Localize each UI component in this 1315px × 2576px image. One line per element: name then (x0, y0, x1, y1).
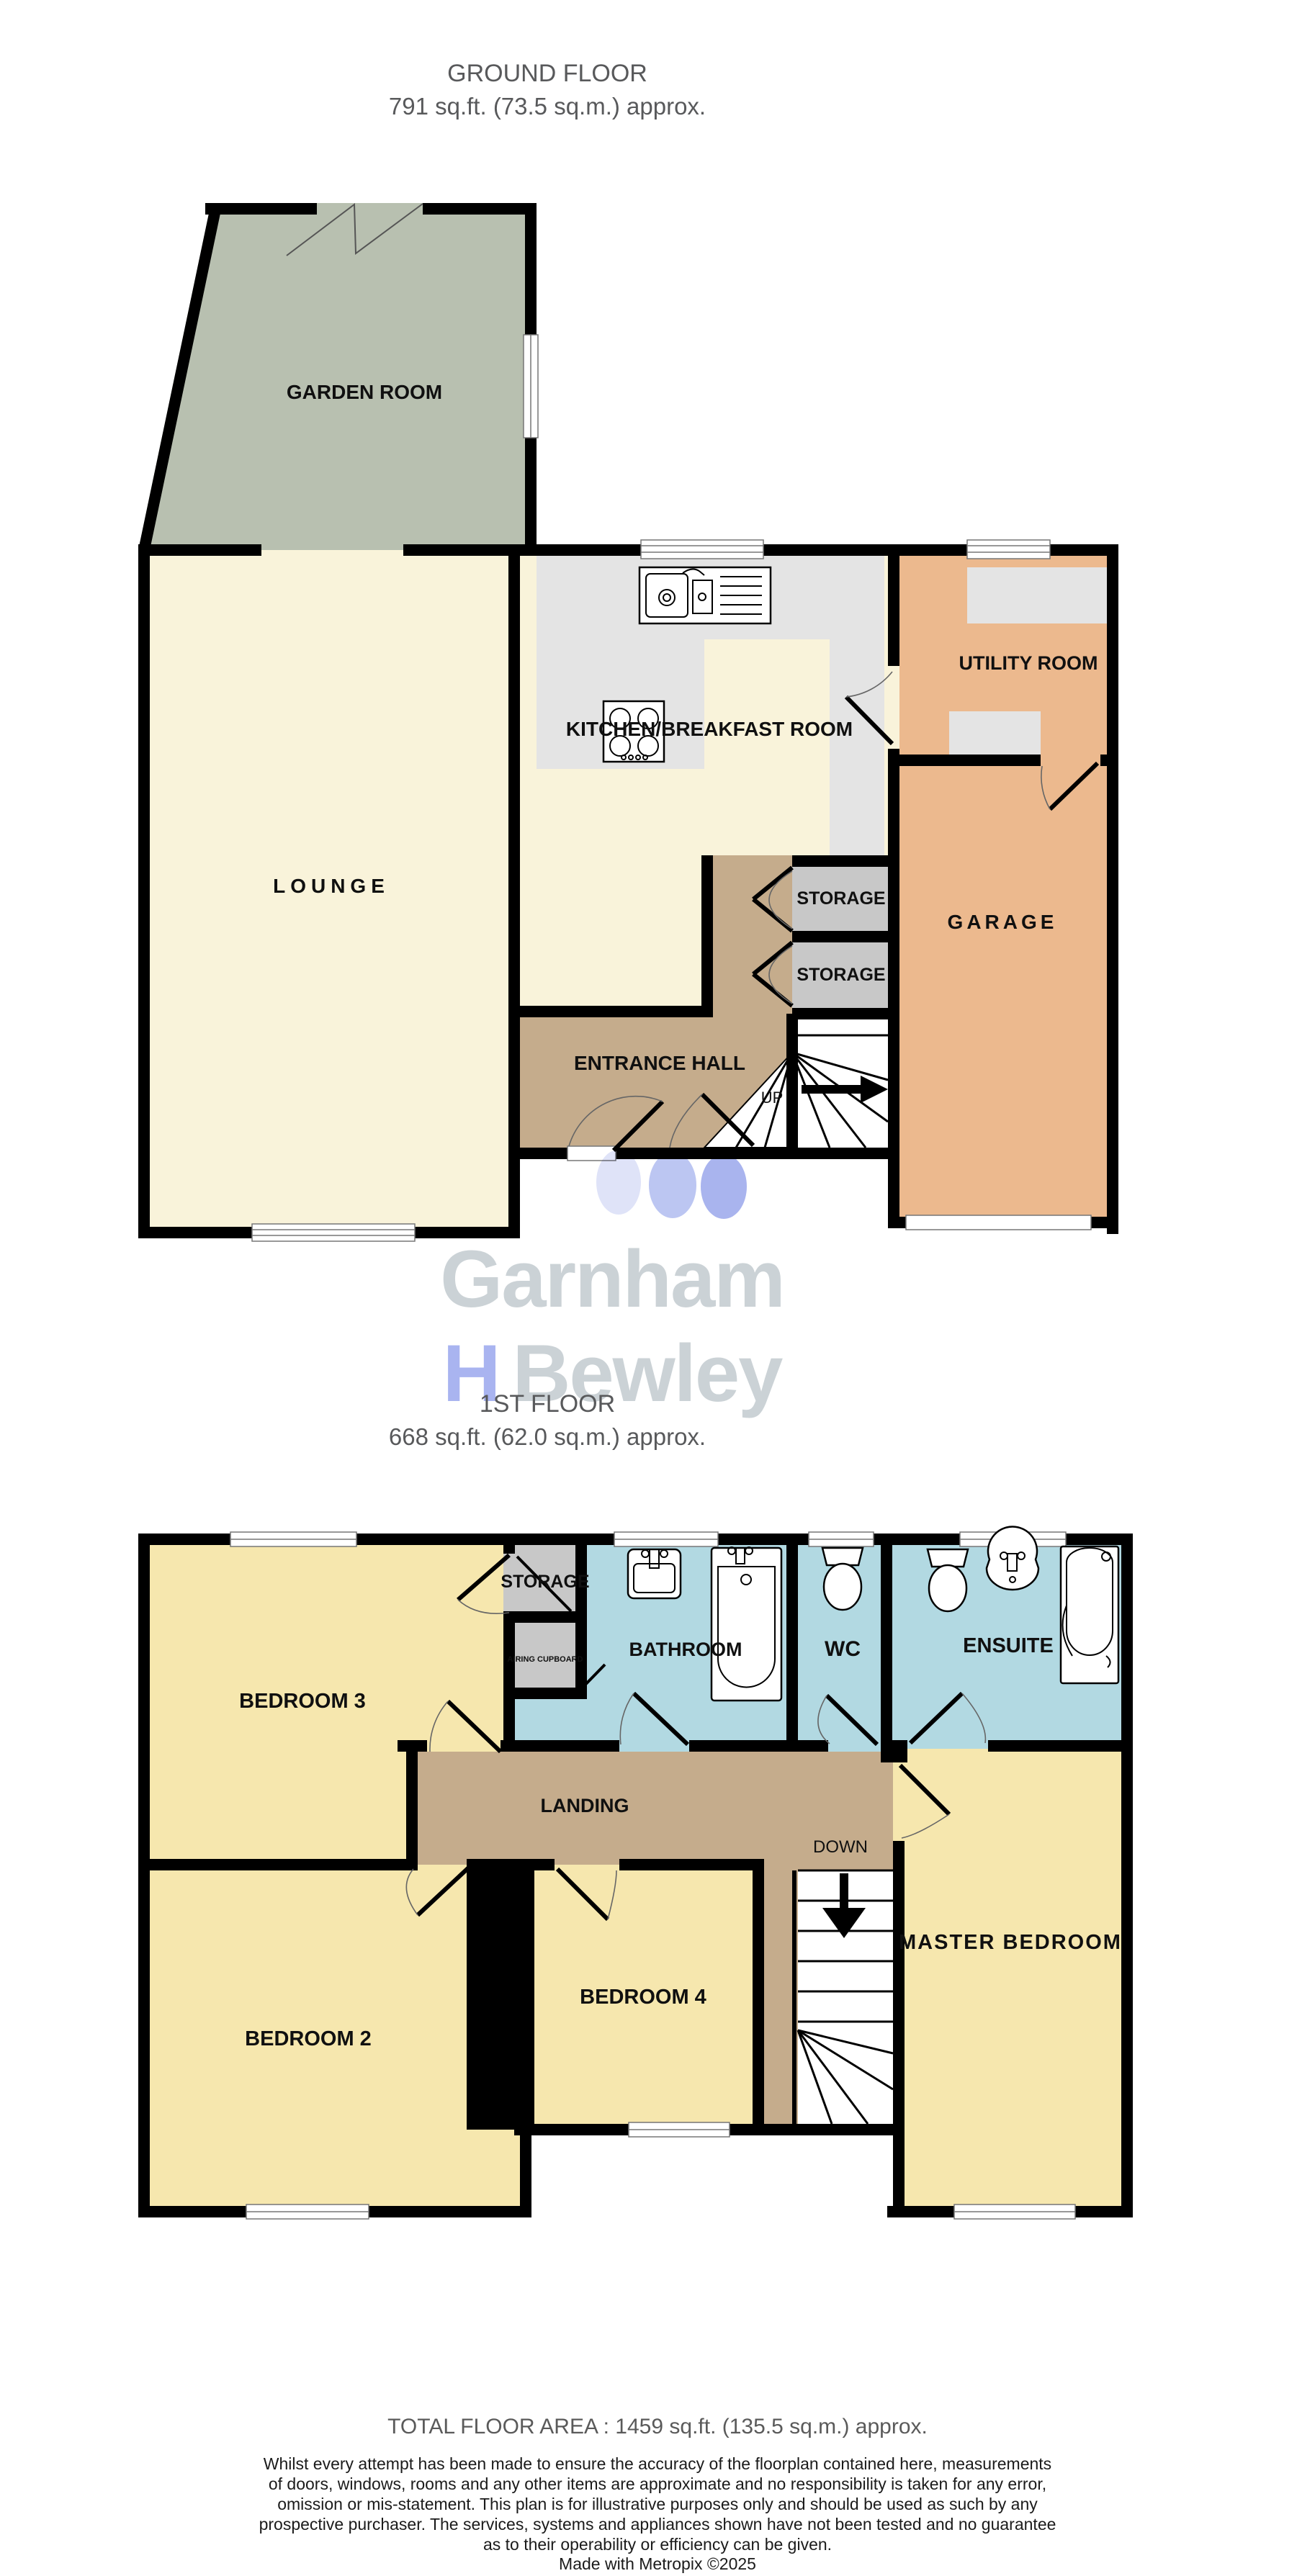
label-kitchen: KITCHEN/BREAKFAST ROOM (566, 718, 853, 740)
utility-garage-door-opening (1041, 755, 1100, 766)
garage-door-opening (906, 1215, 1091, 1230)
hall-corridor-floor (701, 855, 798, 1017)
kitchen-counter-right (830, 639, 884, 855)
label-storage-1: STORAGE (796, 888, 885, 909)
kitchen-utility-door-opening (888, 666, 899, 749)
label-bedroom-2: BEDROOM 2 (245, 2027, 372, 2050)
master-bedroom-window (954, 2205, 1075, 2219)
utility-window (967, 540, 1050, 559)
metropix-credit: Made with Metropix ©2025 (0, 2554, 1315, 2574)
room-kitchen-floor-lower (514, 855, 713, 1017)
first-floor-title-text: 1ST FLOOR (0, 1388, 1095, 1420)
bedroom2-window (246, 2205, 369, 2219)
label-utility: UTILITY ROOM (959, 652, 1098, 674)
label-up: UP (761, 1089, 784, 1107)
ground-floor-plan: GARDEN ROOM LOUNGE KITCHEN/BREAKFAST ROO… (138, 203, 1118, 1241)
label-garage: GARAGE (948, 911, 1058, 933)
bedroom3-window (230, 1532, 356, 1546)
room-garden-room-floor (138, 203, 537, 550)
room-master-bedroom-floor (893, 1749, 1127, 2212)
first-floor-title: 1ST FLOOR 668 sq.ft. (62.0 sq.m.) approx… (0, 1388, 1095, 1453)
label-entrance-hall: ENTRANCE HALL (574, 1052, 745, 1074)
ensuite-basin (987, 1527, 1038, 1590)
bathroom-sink (628, 1549, 681, 1598)
ensuite-shower-bath (1061, 1546, 1118, 1683)
bathroom-bathtub (712, 1547, 781, 1701)
bedroom4-window (629, 2122, 730, 2137)
lounge-window (252, 1224, 415, 1241)
total-floor-area: TOTAL FLOOR AREA : 1459 sq.ft. (135.5 sq… (0, 2415, 1315, 2439)
label-lounge: LOUNGE (273, 875, 390, 897)
disclaimer-line: omission or mis-statement. This plan is … (0, 2494, 1315, 2514)
label-landing: LANDING (541, 1795, 629, 1816)
wc-toilet (822, 1548, 863, 1610)
utility-counter-top (967, 567, 1107, 623)
label-airing-cupboard: AIRING CUPBOARD (507, 1655, 583, 1664)
label-storage-2: STORAGE (796, 965, 885, 985)
label-master-bedroom: MASTER BEDROOM (899, 1931, 1122, 1954)
first-floor-plan: BEDROOM 3 STORAGE AIRING CUPBOARD BATHRO… (138, 1527, 1133, 2219)
disclaimer-line: as to their operability or efficiency ca… (0, 2534, 1315, 2554)
label-bedroom-4: BEDROOM 4 (580, 1986, 706, 2009)
label-ensuite: ENSUITE (963, 1634, 1054, 1657)
label-wc: WC (825, 1637, 861, 1661)
disclaimer-line: Whilst every attempt has been made to en… (0, 2454, 1315, 2474)
label-bathroom: BATHROOM (629, 1639, 742, 1660)
garden-room-window (524, 335, 538, 438)
room-garage-floor (888, 760, 1118, 1222)
bathroom-window (614, 1532, 718, 1546)
disclaimer-line: of doors, windows, rooms and any other i… (0, 2474, 1315, 2494)
wc-window (809, 1532, 874, 1546)
label-bedroom-3: BEDROOM 3 (239, 1690, 366, 1713)
label-garden-room: GARDEN ROOM (287, 381, 442, 403)
label-storage-first: STORAGE (501, 1572, 589, 1592)
utility-counter-bottom (949, 711, 1041, 755)
kitchen-window (641, 540, 763, 559)
floorplan-canvas: GARDEN ROOM LOUNGE KITCHEN/BREAKFAST ROO… (0, 0, 1315, 2576)
first-floor-area-text: 668 sq.ft. (62.0 sq.m.) approx. (0, 1420, 1095, 1453)
label-down: DOWN (813, 1837, 868, 1857)
kitchen-sink (639, 567, 771, 623)
disclaimer-line: prospective purchaser. The services, sys… (0, 2514, 1315, 2534)
disclaimer: Whilst every attempt has been made to en… (0, 2454, 1315, 2554)
ensuite-toilet (928, 1549, 968, 1611)
